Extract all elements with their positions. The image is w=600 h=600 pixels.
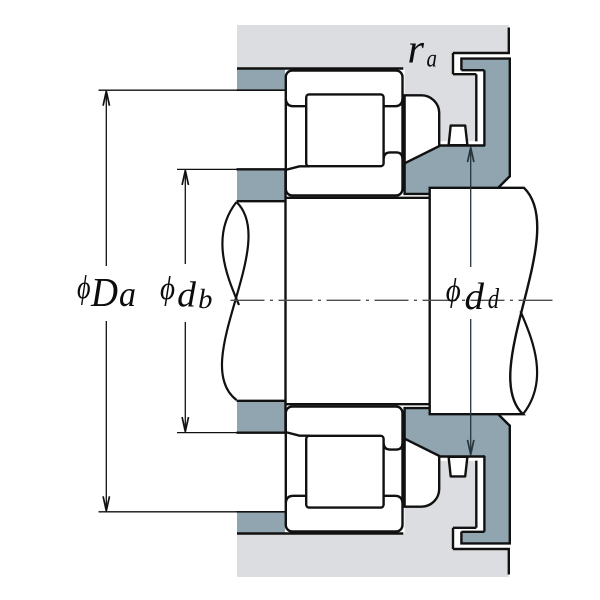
svg-text:ϕ: ϕ bbox=[160, 271, 175, 307]
svg-text:d: d bbox=[177, 275, 196, 315]
svg-text:r: r bbox=[408, 26, 426, 72]
svg-text:ϕ: ϕ bbox=[446, 273, 461, 309]
svg-text:d: d bbox=[488, 284, 500, 315]
svg-text:d: d bbox=[465, 276, 485, 318]
svg-text:ϕ: ϕ bbox=[77, 270, 91, 306]
svg-text:D: D bbox=[90, 269, 118, 315]
svg-text:b: b bbox=[198, 284, 212, 314]
svg-text:a: a bbox=[119, 274, 136, 314]
svg-text:a: a bbox=[427, 46, 438, 73]
